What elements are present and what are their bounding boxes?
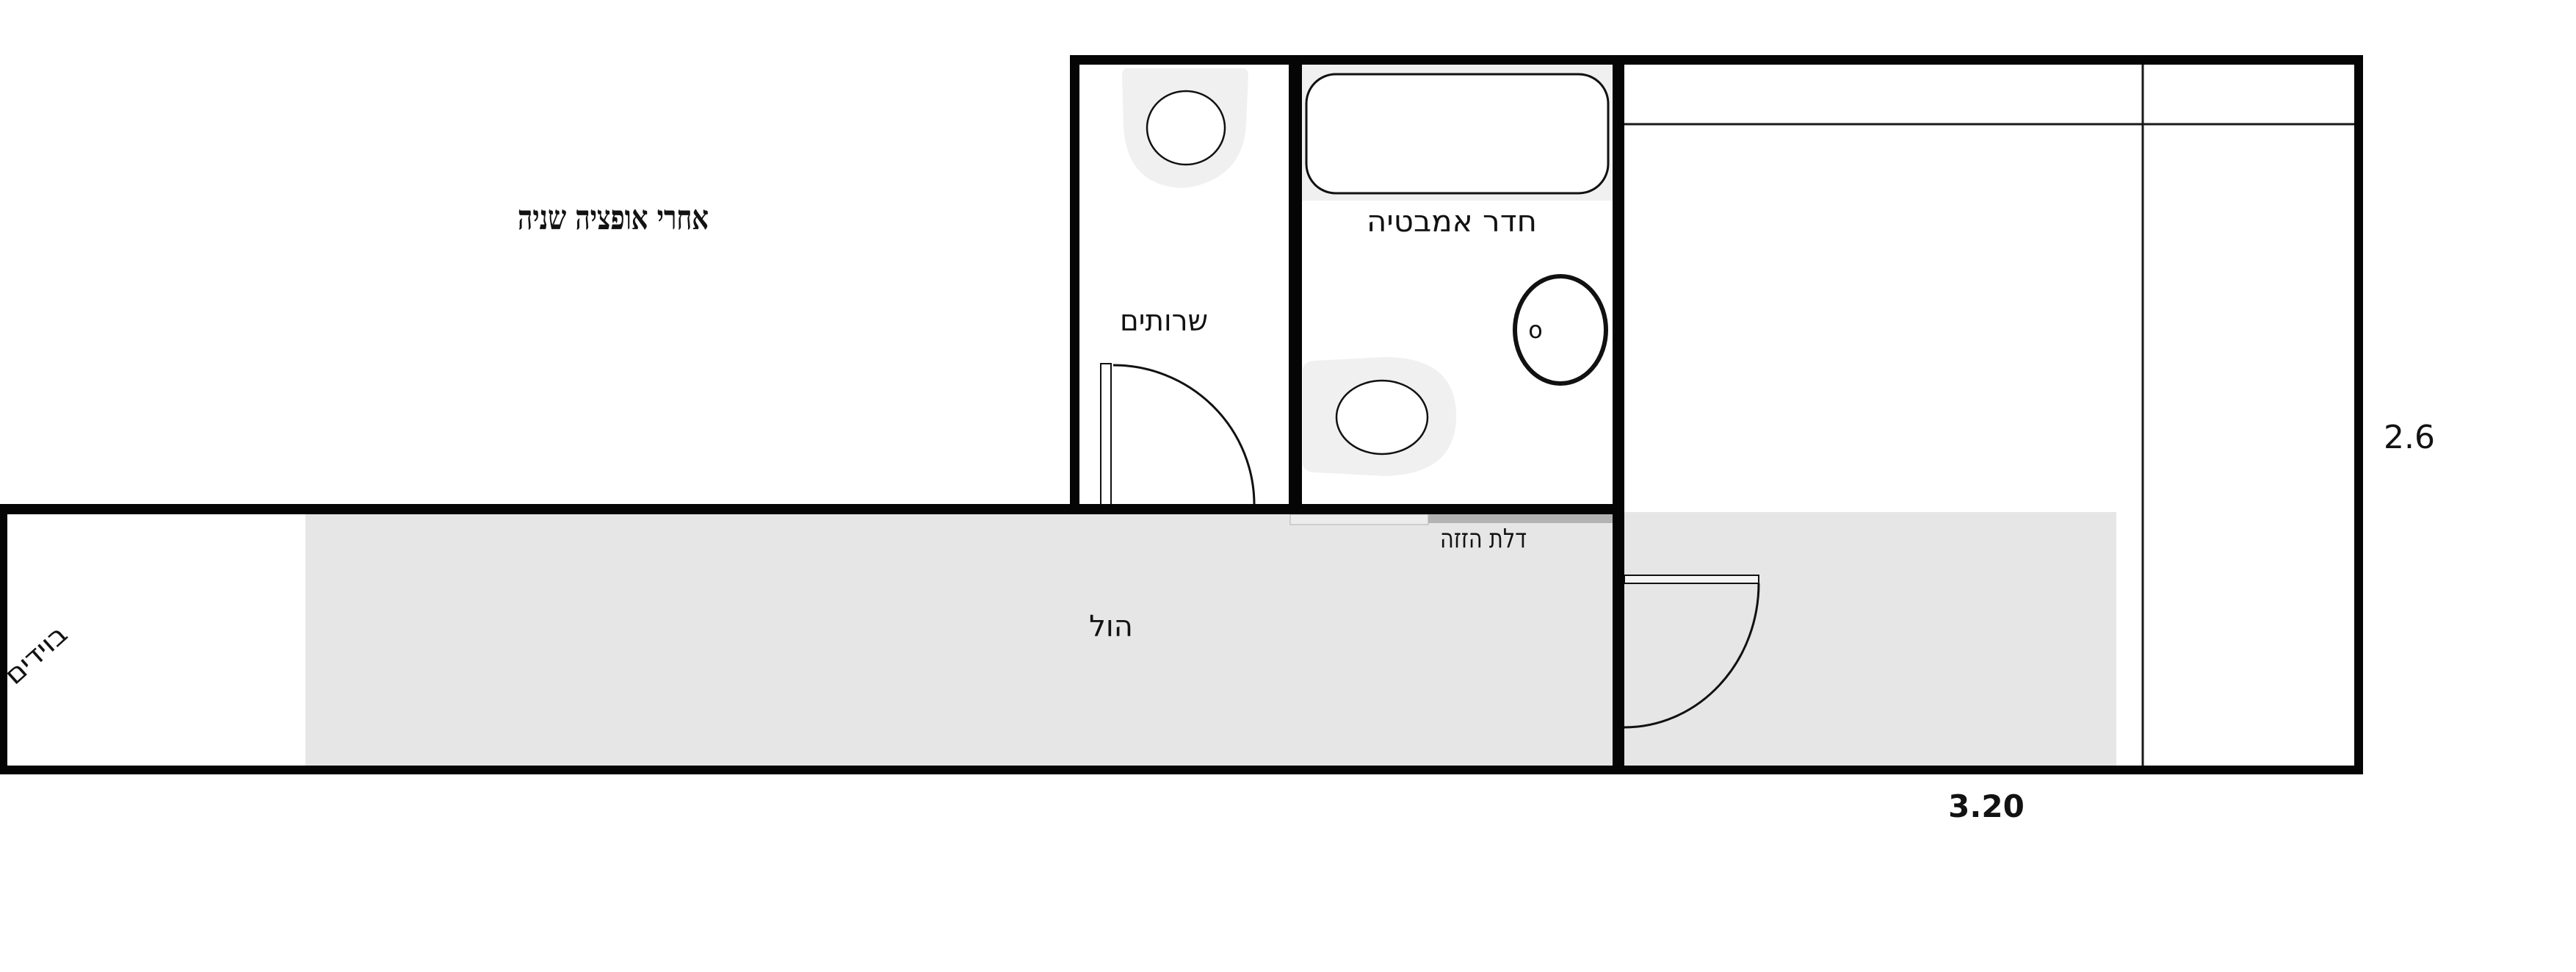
wc-door-arc [1113, 365, 1254, 505]
bath-toilet-bowl [1336, 381, 1428, 454]
wall-bottom [0, 766, 2363, 774]
sliding-door-pocket [1290, 514, 1428, 525]
wall-right [2354, 55, 2363, 774]
wc-door-leaf [1101, 364, 1111, 505]
room-label-toilet: שרותים [1120, 304, 1208, 338]
right-room-floor [1624, 512, 2116, 766]
wc-toilet-bowl [1147, 91, 1225, 165]
wall-wc-left [1070, 55, 1079, 514]
wall-hall-top [0, 504, 1624, 514]
right-room-door-leaf [1624, 575, 1759, 583]
room-label-bathroom: חדר אמבטיה [1367, 205, 1537, 239]
room-label-boydem: בוידים [0, 619, 73, 691]
plan-title: אחרי אופציה שניה [518, 198, 709, 237]
wall-top [1070, 55, 2363, 65]
wall-wc-bath [1289, 55, 1302, 514]
room-label-hall: הול [1089, 610, 1133, 644]
dimension-bottom-width: 3.20 [1948, 788, 2025, 824]
hall-floor [305, 514, 1613, 766]
sliding-door-label: דלת הזזה [1440, 524, 1527, 554]
wall-hall-left [0, 504, 7, 774]
washing-machine-mark: o [1528, 316, 1543, 344]
wall-bath-rightroom [1613, 55, 1624, 767]
dimension-right-height: 2.6 [2384, 419, 2435, 456]
floor-plan: o אחרי אופציה שניה שרותים חדר אמבטיה הול… [0, 0, 2576, 972]
bathtub [1306, 74, 1608, 193]
